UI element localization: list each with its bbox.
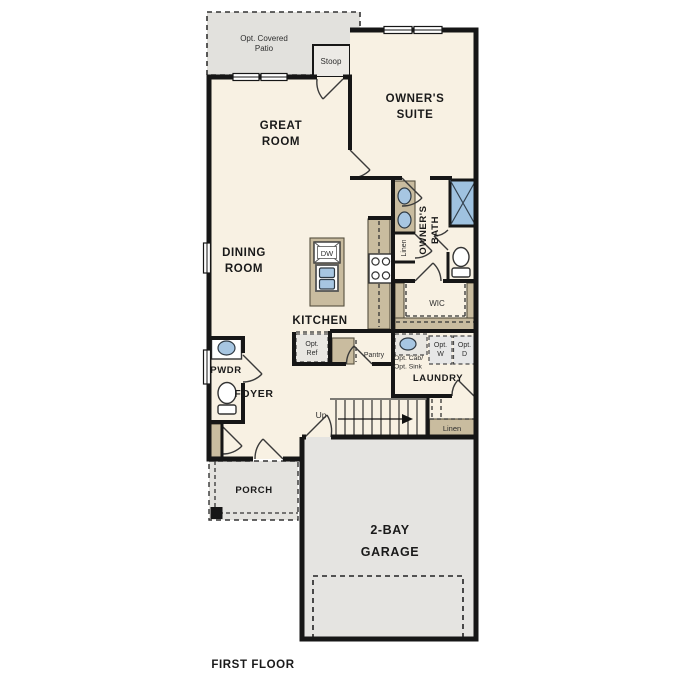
opt-ref-label: Ref — [307, 350, 318, 357]
dryer-opt — [454, 336, 476, 364]
owners-suite-label: SUITE — [397, 109, 434, 121]
pantry-shelf — [332, 338, 356, 364]
floor-plan-drawing: DW — [0, 0, 687, 687]
foyer-label: FOYER — [234, 388, 273, 400]
stoop-label: Stoop — [321, 57, 342, 66]
stairs-up-label: Up — [316, 410, 327, 420]
garage-label: 2-BAY — [370, 523, 409, 537]
laundry-sink-opt — [400, 338, 416, 350]
plan-title: FIRST FLOOR — [211, 659, 294, 671]
opt-ref-label: Opt. — [305, 341, 318, 348]
opt-cab-sink-label: Opt. Sink — [394, 364, 423, 371]
pwdr-label: PWDR — [210, 365, 241, 376]
pwdr-sink — [212, 338, 242, 359]
kitchen-island: DW — [310, 238, 344, 306]
toilet-bath — [452, 248, 470, 278]
patio-label: Patio — [255, 44, 274, 53]
window — [204, 243, 211, 273]
linen-stairs-label: Linen — [443, 424, 461, 433]
laundry-cabinet-opt — [395, 334, 427, 355]
opt-dryer-label: Opt. — [458, 342, 471, 349]
owners-suite-label: OWNER'S — [386, 93, 445, 105]
island-sink — [316, 265, 338, 291]
opt-washer-label: Opt. — [434, 342, 447, 349]
opt-dryer-label: D — [462, 351, 467, 358]
pantry-label: Pantry — [364, 352, 385, 359]
opt-cab-sink-label: Opt. Cab/ — [394, 355, 423, 362]
wic-label: WIC — [429, 299, 445, 308]
owners-bath-label: OWNER'S — [418, 205, 429, 254]
great-room-label: ROOM — [262, 136, 300, 148]
laundry-label: LAUNDRY — [413, 373, 463, 384]
garage-area — [302, 437, 476, 639]
porch-column — [211, 507, 223, 519]
owners-bath-label: BATH — [430, 216, 441, 244]
kitchen-label: KITCHEN — [292, 315, 347, 327]
window — [233, 74, 259, 81]
window — [261, 74, 287, 81]
dishwasher: DW — [314, 242, 340, 263]
washer-opt — [429, 336, 452, 364]
window — [414, 27, 442, 34]
window — [384, 27, 412, 34]
pwdr-toilet — [218, 383, 236, 415]
kitchen-counter — [368, 219, 392, 329]
vanity-sink — [398, 188, 411, 204]
opt-washer-label: W — [437, 351, 444, 358]
porch-label: PORCH — [235, 485, 272, 496]
garage-label: GARAGE — [361, 545, 419, 559]
patio-label: Opt. Covered — [240, 34, 288, 43]
dishwasher-label: DW — [321, 249, 334, 258]
vanity-sink — [398, 212, 411, 228]
floor-plan-page: DW — [0, 0, 687, 687]
shower — [450, 180, 476, 226]
great-room-label: GREAT — [260, 120, 302, 132]
linen-bath-label: Linen — [401, 239, 408, 256]
entry-closet — [210, 424, 221, 457]
dining-room-label: ROOM — [225, 263, 263, 275]
dining-room-label: DINING — [222, 247, 266, 259]
range — [369, 254, 392, 283]
